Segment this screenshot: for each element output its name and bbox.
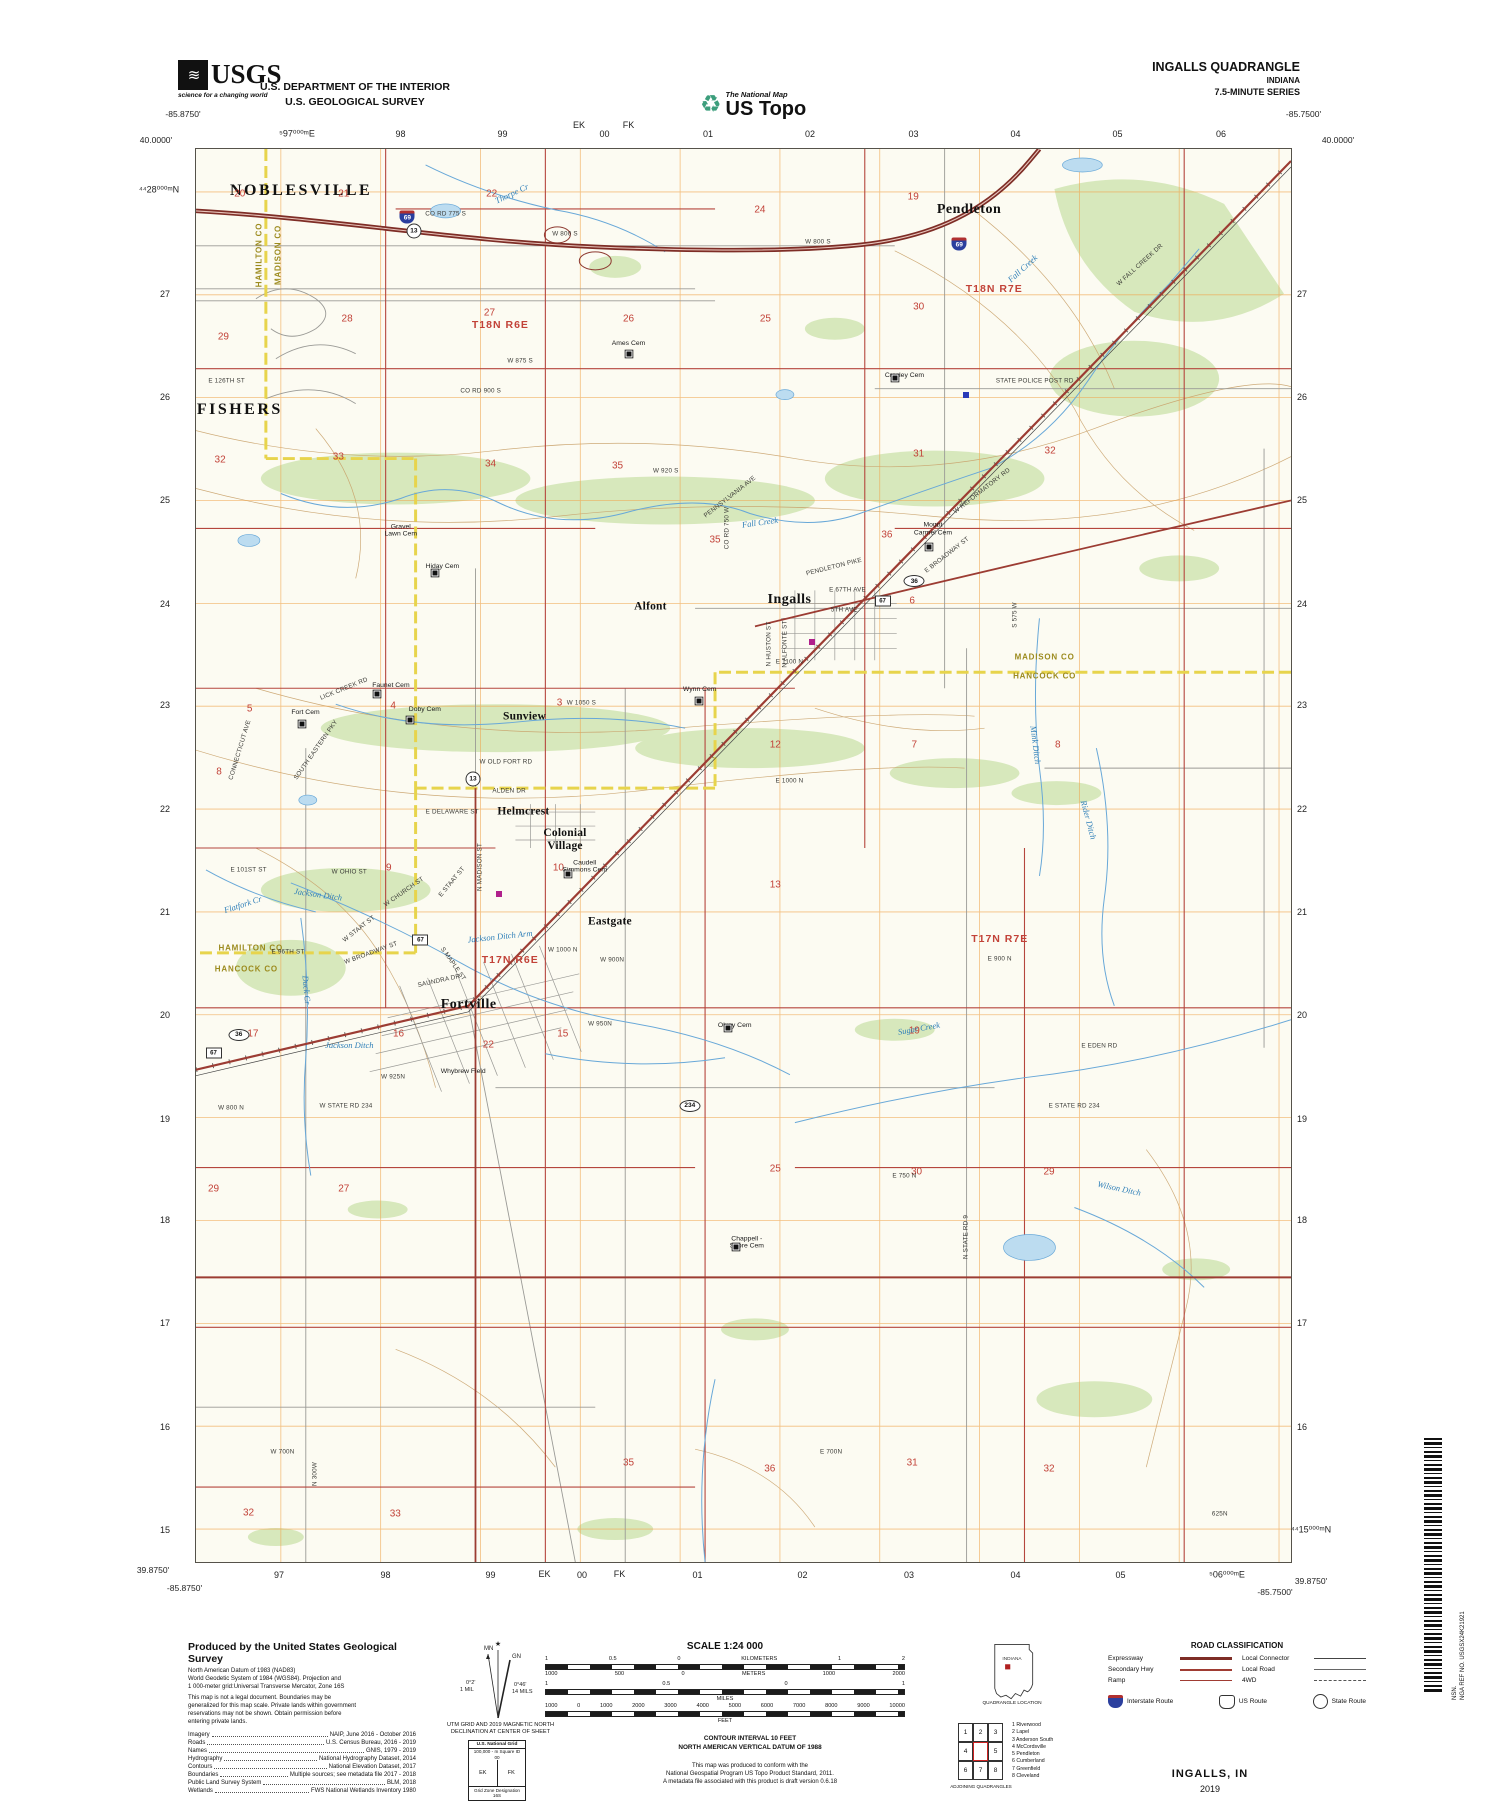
adjoining-name: 1 Riverwood <box>1012 1722 1082 1729</box>
map-marker <box>300 722 305 727</box>
map-marker <box>407 717 412 722</box>
ft-bar <box>545 1711 905 1717</box>
scale-tick: 1000 <box>545 1703 557 1710</box>
map-marker <box>963 392 969 398</box>
grid-label: EK <box>573 120 585 130</box>
data-sources: ImageryNAIP, June 2016 - October 2016 Ro… <box>188 1731 416 1795</box>
grid-label: 24 <box>160 599 170 609</box>
producer-heading: Produced by the United States Geological… <box>188 1641 416 1665</box>
data-source-row: BoundariesMultiple sources; see metadata… <box>188 1771 416 1779</box>
svg-text:★: ★ <box>495 1640 501 1648</box>
ustopo-label: US Topo <box>726 99 807 119</box>
data-source-row: HydrographyNational Hydrography Dataset,… <box>188 1755 416 1763</box>
grid-label: 00 <box>599 129 609 139</box>
corner-coordinate: 40.0000' <box>1322 135 1354 145</box>
grid-label: EK <box>538 1569 550 1579</box>
quadrangle-title: INGALLS QUADRANGLE INDIANA 7.5-MINUTE SE… <box>1050 60 1300 97</box>
grid-label: 26 <box>160 392 170 402</box>
grid-label: ⁵06⁰⁰⁰ᵐE <box>1209 1570 1245 1581</box>
corner-coordinate: -85.7500' <box>1286 109 1321 119</box>
adjoining-cell: 7 <box>973 1761 988 1780</box>
barcode <box>1424 1438 1442 1694</box>
grid-label: ⁵97⁰⁰⁰ᵐE <box>279 129 315 140</box>
usng-quadrants: EK FK <box>469 1760 525 1787</box>
legal-note: This map is not a legal document. Bounda… <box>188 1695 416 1726</box>
scale-block: SCALE 1:24 000 10.50KILOMETERS12 1000500… <box>545 1641 905 1725</box>
adjoining-cell: 8 <box>988 1761 1003 1780</box>
production-notes: Produced by the United States Geological… <box>188 1641 416 1795</box>
road-class-row: Secondary Hwy <box>1108 1666 1232 1673</box>
route-shield: 234 <box>679 1100 700 1112</box>
scale-tick: 6000 <box>761 1703 773 1710</box>
scale-tick: 0 <box>784 1681 787 1688</box>
datum-note: North American Datum of 1983 (NAD83) Wor… <box>188 1668 416 1691</box>
scale-tick: 0 <box>677 1656 680 1663</box>
ft-labels: 1000010002000300040005000600070008000900… <box>545 1703 905 1710</box>
corner-coordinate: -85.8750' <box>167 1583 202 1593</box>
scale-tick: 3000 <box>664 1703 676 1710</box>
svg-text:MN: MN <box>484 1646 493 1652</box>
usgs-wave-icon: ≋ <box>178 60 208 90</box>
map-marker <box>374 692 379 697</box>
grid-label: 99 <box>497 129 507 139</box>
grid-label: 21 <box>160 907 170 917</box>
declination-diagram: ★ MN GN 0°2' 1 MIL 0°46' 14 MILS <box>448 1638 548 1722</box>
road-line-sample <box>1314 1658 1366 1659</box>
nsn-label: NSN. <box>1452 1686 1458 1700</box>
data-source-row: WetlandsFWS National Wetlands Inventory … <box>188 1787 416 1795</box>
standard-conformance-note: This map was produced to conform with th… <box>590 1762 910 1786</box>
adjoining-name: 3 Anderson South <box>1012 1737 1082 1744</box>
map-marker <box>432 570 437 575</box>
grid-label: FK <box>614 1569 626 1579</box>
quad-state: INDIANA <box>1050 76 1300 85</box>
adjoining-cell: 1 <box>958 1723 973 1742</box>
nga-ref-label: NGA REF NO. USGSX24K21921 <box>1460 1611 1466 1700</box>
data-source-row: Public Land Survey SystemBLM, 2018 <box>188 1779 416 1787</box>
grid-label: 00 <box>577 1570 587 1580</box>
road-class-row: Expressway <box>1108 1655 1232 1662</box>
svg-text:GN: GN <box>512 1654 521 1660</box>
usgs-topo-sheet: { "header":{ "usgs":"USGS","tagline":"sc… <box>0 0 1500 1813</box>
svg-text:0°46': 0°46' <box>514 1682 526 1688</box>
adjoining-cell: 3 <box>988 1723 1003 1742</box>
map-linework <box>196 149 1291 1562</box>
map-sheet: NOBLESVILLEFISHERSPendletonIngallsAlfont… <box>195 148 1292 1563</box>
grid-label: 98 <box>395 129 405 139</box>
grid-label: 23 <box>1297 700 1307 710</box>
interstate-shield-icon <box>1108 1695 1123 1708</box>
grid-label: 04 <box>1010 1570 1020 1580</box>
grid-label: 17 <box>1297 1318 1307 1328</box>
scale-tick: 500 <box>615 1671 624 1678</box>
scale-tick: 10000 <box>889 1703 905 1710</box>
grid-label: 18 <box>160 1215 170 1225</box>
indiana-outline: INDIANA <box>986 1641 1038 1703</box>
grid-label: 23 <box>160 700 170 710</box>
road-line-sample <box>1314 1669 1366 1670</box>
route-shield: 67 <box>206 1048 222 1059</box>
svg-text:1 MIL: 1 MIL <box>460 1687 474 1693</box>
quad-series: 7.5-MINUTE SERIES <box>1050 87 1300 97</box>
usng-title: U.S. National Grid <box>469 1741 525 1749</box>
grid-label: 97 <box>274 1570 284 1580</box>
ft-unit: FEET <box>545 1718 905 1725</box>
grid-label: 02 <box>797 1570 807 1580</box>
route-shield: 69 <box>952 237 967 250</box>
scale-tick: 5000 <box>729 1703 741 1710</box>
usng-q2: FK <box>498 1760 526 1786</box>
quadrangle-location: INDIANA <box>980 1641 1044 1708</box>
data-source-row: RoadsU.S. Census Bureau, 2016 - 2019 <box>188 1739 416 1747</box>
scale-tick: 8000 <box>825 1703 837 1710</box>
grid-label: 18 <box>1297 1215 1307 1225</box>
scale-tick: 0.5 <box>662 1681 670 1688</box>
scale-tick: 1000 <box>545 1671 557 1678</box>
route-shield: 67 <box>412 935 428 946</box>
scale-tick: 1 <box>545 1681 548 1688</box>
adjoining-cell: 5 <box>988 1742 1003 1761</box>
corner-coordinate: 39.8750' <box>137 1565 169 1575</box>
map-marker <box>892 375 897 380</box>
grid-label: 21 <box>1297 907 1307 917</box>
us-route-item: US Route <box>1219 1695 1267 1709</box>
map-marker <box>496 891 502 897</box>
grid-label: 22 <box>1297 804 1307 814</box>
sheet-name: INGALLS, IN <box>1140 1768 1280 1780</box>
adjoining-cell <box>973 1742 988 1761</box>
scale-tick: 1000 <box>600 1703 612 1710</box>
road-line-sample <box>1180 1680 1232 1681</box>
road-line-sample <box>1180 1669 1232 1671</box>
grid-label: 20 <box>160 1010 170 1020</box>
adjoining-caption: ADJOINING QUADRANGLES <box>948 1784 1014 1789</box>
map-marker <box>726 1025 731 1030</box>
adjoining-quadrangle-grid: 12345678 <box>958 1723 1003 1780</box>
adjoining-quadrangle-names: 1 Riverwood2 Lapel3 Anderson South4 McCo… <box>1012 1722 1082 1780</box>
adjoining-name: 4 McCordsville <box>1012 1744 1082 1751</box>
adjoining-cell: 6 <box>958 1761 973 1780</box>
map-marker <box>566 871 571 876</box>
road-class-row: Local Connector <box>1242 1655 1366 1662</box>
scale-tick: 9000 <box>857 1703 869 1710</box>
grid-label: ⁴⁴15⁰⁰⁰ᵐN <box>1291 1525 1331 1536</box>
grid-label: 22 <box>160 804 170 814</box>
grid-label: 98 <box>380 1570 390 1580</box>
scale-tick: 4000 <box>696 1703 708 1710</box>
svg-text:14 MILS: 14 MILS <box>512 1689 533 1695</box>
scale-tick: 7000 <box>793 1703 805 1710</box>
dept-line2: U.S. GEOLOGICAL SURVEY <box>250 95 460 110</box>
adjoining-cell: 4 <box>958 1742 973 1761</box>
scale-tick: 1 <box>838 1656 841 1663</box>
grid-label: 25 <box>160 495 170 505</box>
ustopo-logo: ♻ The National Map US Topo <box>700 90 806 119</box>
grid-label: 02 <box>805 129 815 139</box>
route-shield: 36 <box>904 575 925 587</box>
route-shield: 67 <box>875 596 891 607</box>
quad-name: INGALLS QUADRANGLE <box>1050 60 1300 74</box>
grid-label: 27 <box>160 289 170 299</box>
scale-tick: 1 <box>545 1656 548 1663</box>
road-classification-legend: ROAD CLASSIFICATION ExpresswaySecondary … <box>1108 1641 1366 1709</box>
corner-coordinate: -85.7500' <box>1257 1587 1292 1597</box>
grid-label: 25 <box>1297 495 1307 505</box>
scale-tick: METERS <box>742 1671 765 1678</box>
corner-coordinate: -85.8750' <box>165 109 200 119</box>
route-shield: 36 <box>228 1029 249 1041</box>
data-source-row: ImageryNAIP, June 2016 - October 2016 <box>188 1731 416 1739</box>
scale-tick: 0 <box>577 1703 580 1710</box>
km-labels: 10.50KILOMETERS12 <box>545 1656 905 1663</box>
scale-tick: 0.5 <box>609 1656 617 1663</box>
road-line-sample <box>1180 1657 1232 1660</box>
sheet-year: 2019 <box>1140 1784 1280 1794</box>
indiana-label: INDIANA <box>1002 1656 1022 1662</box>
grid-label: 26 <box>1297 392 1307 402</box>
scale-tick: 2000 <box>632 1703 644 1710</box>
us-national-grid-box: U.S. National Grid 100,000 - m Square ID… <box>468 1740 526 1801</box>
grid-label: 03 <box>904 1570 914 1580</box>
adjoining-name: 6 Cumberland <box>1012 1758 1082 1765</box>
route-shield: 69 <box>400 210 415 223</box>
adjoining-name: 2 Lapel <box>1012 1729 1082 1736</box>
m-labels: 10005000METERS10002000 <box>545 1671 905 1678</box>
road-class-row: Ramp <box>1108 1677 1232 1684</box>
road-classification-title: ROAD CLASSIFICATION <box>1108 1641 1366 1650</box>
map-marker <box>809 639 815 645</box>
map-marker <box>696 699 701 704</box>
adjoining-name: 8 Cleveland <box>1012 1773 1082 1780</box>
scale-tick: 0 <box>682 1671 685 1678</box>
scale-tick: 1 <box>902 1681 905 1688</box>
mi-unit: MILES <box>545 1696 905 1703</box>
grid-label: 17 <box>160 1318 170 1328</box>
mi-labels: 10.501 <box>545 1681 905 1688</box>
km-bar <box>545 1664 905 1670</box>
sheet-title-block: INGALLS, IN 2019 <box>1140 1768 1280 1794</box>
grid-label: FK <box>623 120 635 130</box>
grid-label: 15 <box>160 1525 170 1535</box>
road-line-sample <box>1314 1680 1366 1681</box>
scale-tick: 1000 <box>823 1671 835 1678</box>
usng-zone-label: Grid Zone Designation 16S <box>469 1787 525 1800</box>
scale-tick: 2 <box>902 1656 905 1663</box>
us-route-shield-icon <box>1219 1695 1235 1709</box>
grid-label: 16 <box>160 1422 170 1432</box>
road-class-row: Local Road <box>1242 1666 1366 1673</box>
interstate-route-item: Interstate Route <box>1108 1695 1173 1708</box>
national-map-icon: ♻ <box>700 93 722 117</box>
usng-zone: 16S <box>469 1793 525 1798</box>
road-class-row: 4WD <box>1242 1677 1366 1684</box>
adjoining-name: 7 Greenfield <box>1012 1766 1082 1773</box>
adjoining-cell: 2 <box>973 1723 988 1742</box>
grid-label: 99 <box>485 1570 495 1580</box>
grid-label: 24 <box>1297 599 1307 609</box>
map-marker <box>733 1244 738 1249</box>
grid-label: 05 <box>1112 129 1122 139</box>
grid-label: 16 <box>1297 1422 1307 1432</box>
usng-square-id-label: 100,000 - m Square ID <box>469 1749 525 1754</box>
grid-label: 03 <box>908 129 918 139</box>
state-route-item: State Route <box>1313 1694 1366 1709</box>
grid-label: 19 <box>1297 1114 1307 1124</box>
svg-text:0°2': 0°2' <box>466 1680 475 1686</box>
grid-label: 04 <box>1010 129 1020 139</box>
grid-label: 05 <box>1115 1570 1125 1580</box>
grid-label: 20 <box>1297 1010 1307 1020</box>
corner-coordinate: 39.8750' <box>1295 1576 1327 1586</box>
state-route-shield-icon <box>1313 1694 1328 1709</box>
department-header: U.S. DEPARTMENT OF THE INTERIOR U.S. GEO… <box>250 80 460 110</box>
grid-label: 06 <box>1216 129 1226 139</box>
mi-bar <box>545 1689 905 1695</box>
usng-q1: EK <box>469 1760 498 1786</box>
route-shield: 13 <box>466 772 481 787</box>
map-marker <box>626 351 631 356</box>
quadrangle-location-caption: QUADRANGLE LOCATION <box>962 1701 1062 1706</box>
grid-label: 27 <box>1297 289 1307 299</box>
adjoining-name: 5 Pendleton <box>1012 1751 1082 1758</box>
grid-label: ⁴⁴28⁰⁰⁰ᵐN <box>139 185 179 196</box>
grid-label: 01 <box>692 1570 702 1580</box>
road-class-left: ExpresswaySecondary HwyRamp <box>1108 1655 1232 1688</box>
route-shield: 13 <box>406 223 421 238</box>
contour-interval-note: CONTOUR INTERVAL 10 FEET NORTH AMERICAN … <box>600 1735 900 1752</box>
scale-tick: 2000 <box>892 1671 904 1678</box>
data-source-row: NamesGNIS, 1979 - 2019 <box>188 1747 416 1755</box>
scale-title: SCALE 1:24 000 <box>545 1641 905 1652</box>
road-class-right: Local ConnectorLocal Road4WD <box>1242 1655 1366 1688</box>
grid-label: 01 <box>703 129 713 139</box>
corner-coordinate: 40.0000' <box>140 135 172 145</box>
scale-tick: KILOMETERS <box>741 1656 777 1663</box>
data-source-row: ContoursNational Elevation Dataset, 2017 <box>188 1763 416 1771</box>
grid-label: 19 <box>160 1114 170 1124</box>
map-marker <box>926 545 931 550</box>
dept-line1: U.S. DEPARTMENT OF THE INTERIOR <box>250 80 460 95</box>
